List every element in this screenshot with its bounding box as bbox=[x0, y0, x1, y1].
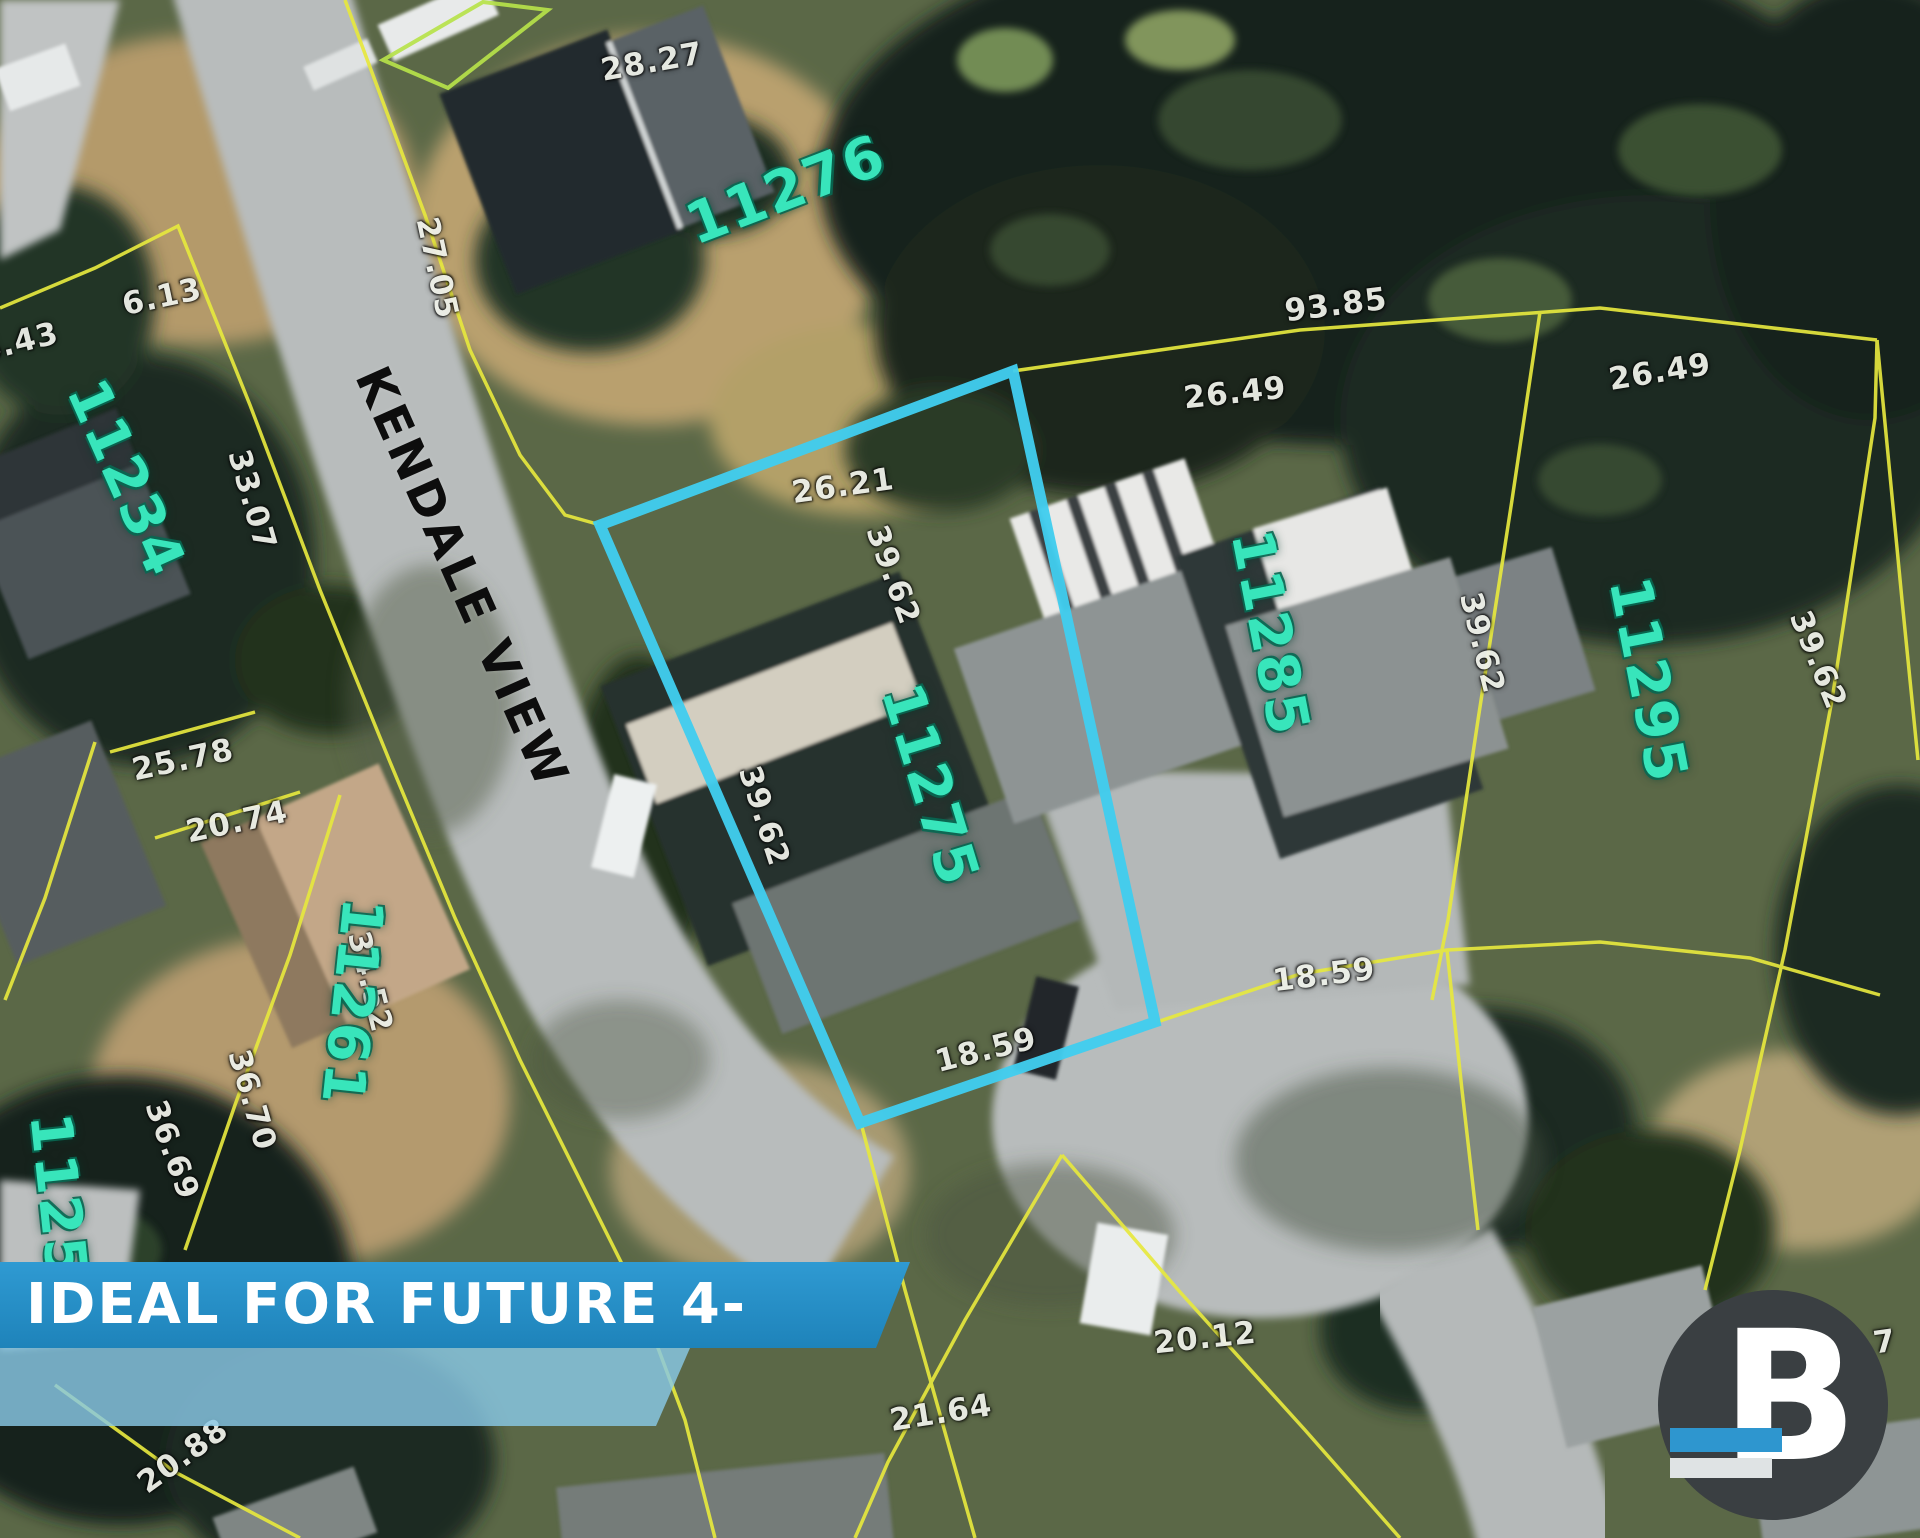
aerial-parcel-map: 28.2727.056.1326.4333.0726.2126.4993.852… bbox=[0, 0, 1920, 1538]
street-name-label: KENDALE VIEW bbox=[344, 358, 581, 797]
dim-18-59-inner: 18.59 bbox=[932, 1020, 1041, 1080]
dim-28-27: 28.27 bbox=[598, 35, 706, 88]
logo-blue-bar-icon bbox=[1670, 1428, 1782, 1452]
dim-20-12: 20.12 bbox=[1152, 1315, 1258, 1362]
dim-26-49-a: 26.49 bbox=[1182, 370, 1288, 417]
logo-white-bar-icon bbox=[1670, 1458, 1772, 1478]
dim-93-85: 93.85 bbox=[1283, 281, 1390, 329]
dim-39-62-west: 39.62 bbox=[731, 761, 797, 870]
dim-36-69: 36.69 bbox=[137, 1095, 206, 1204]
lot-number-11285: 11285 bbox=[1218, 524, 1323, 741]
dim-39-62-east: 39.62 bbox=[858, 520, 927, 629]
dim-20-74: 20.74 bbox=[183, 794, 291, 851]
dim-39-62-d: 39.62 bbox=[1782, 605, 1854, 714]
lot-number-11295: 11295 bbox=[1596, 571, 1701, 788]
lot-number-1125-partial: 1125 bbox=[16, 1110, 99, 1283]
dim-33-07: 33.07 bbox=[220, 446, 283, 555]
brokerage-logo: B bbox=[1658, 1290, 1888, 1520]
dim-27-05: 27.05 bbox=[409, 214, 466, 322]
dim-36-70: 36.70 bbox=[220, 1046, 283, 1155]
dim-25-78: 25.78 bbox=[129, 732, 237, 789]
dim-26-43-partial: 26.43 bbox=[0, 315, 62, 375]
dim-39-62-c: 39.62 bbox=[1452, 589, 1512, 698]
marketing-banner: IDEAL FOR FUTURE 4-PLEX bbox=[0, 1262, 910, 1348]
dim-26-21: 26.21 bbox=[789, 461, 896, 511]
lot-number-11275: 11275 bbox=[868, 676, 992, 895]
lot-number-11276: 11276 bbox=[677, 122, 895, 258]
banner-accent-strip bbox=[0, 1348, 690, 1426]
dim-21-64: 21.64 bbox=[887, 1387, 994, 1439]
lot-number-11234: 11234 bbox=[53, 369, 198, 586]
dim-6-13: 6.13 bbox=[119, 271, 205, 323]
lot-number-11261: 11261 bbox=[308, 895, 395, 1109]
dim-18-59-outer: 18.59 bbox=[1271, 951, 1378, 999]
dim-26-49-b: 26.49 bbox=[1606, 346, 1713, 398]
